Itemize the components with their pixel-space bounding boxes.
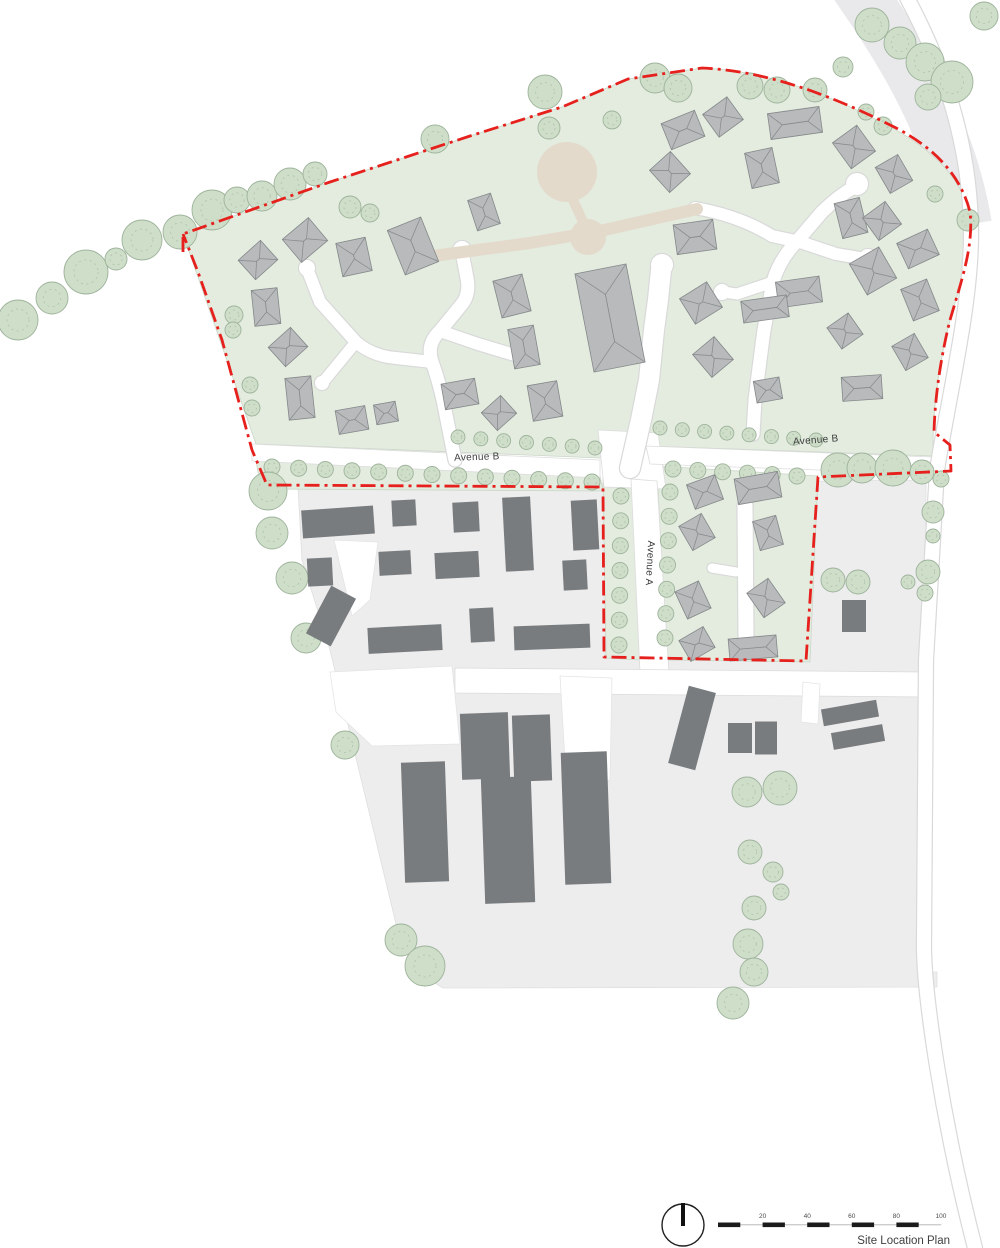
- tree-icon: [933, 471, 949, 487]
- tree-icon: [875, 450, 911, 486]
- tree-icon: [847, 453, 877, 483]
- existing-building: [512, 714, 552, 781]
- tree-icon: [371, 464, 387, 480]
- north-arrow: [662, 1203, 704, 1246]
- tree-icon: [901, 575, 915, 589]
- tree-icon: [612, 563, 628, 579]
- proposed-house: [373, 401, 398, 425]
- tree-icon: [720, 426, 734, 440]
- tree-icon: [846, 570, 870, 594]
- tree-icon: [317, 462, 333, 478]
- tree-icon: [538, 117, 560, 139]
- existing-building: [728, 723, 752, 753]
- proposed-house: [728, 635, 778, 661]
- tree-icon: [764, 77, 790, 103]
- tree-icon: [247, 181, 277, 211]
- tree-icon: [242, 377, 258, 393]
- tree-icon: [244, 400, 260, 416]
- tree-icon: [675, 423, 689, 437]
- tree-icon: [612, 587, 628, 603]
- ground-area: [801, 682, 820, 724]
- tree-icon: [105, 248, 127, 270]
- tree-icon: [926, 529, 940, 543]
- tree-icon: [451, 468, 467, 484]
- tree-icon: [664, 74, 692, 102]
- tree-icon: [915, 84, 941, 110]
- tree-icon: [821, 568, 845, 592]
- scale-bar: 20 40 60 80 100: [718, 1213, 947, 1227]
- tree-icon: [742, 428, 756, 442]
- tree-icon: [698, 424, 712, 438]
- proposed-house: [527, 381, 563, 422]
- tree-icon: [789, 468, 805, 484]
- tree-icon: [528, 75, 562, 109]
- existing-building: [434, 551, 479, 579]
- proposed-house: [673, 219, 717, 254]
- existing-building: [301, 506, 375, 539]
- proposed-house: [335, 406, 369, 435]
- existing-building: [460, 712, 510, 780]
- tree-icon: [331, 731, 359, 759]
- tree-icon: [542, 437, 556, 451]
- scale-bar-segment: [852, 1223, 874, 1228]
- tree-icon: [742, 896, 766, 920]
- north-arrow-needle-icon: [681, 1203, 685, 1226]
- tree-icon: [715, 464, 731, 480]
- tree-icon: [927, 186, 943, 202]
- tree-icon: [303, 162, 327, 186]
- scale-bar-segment: [807, 1223, 829, 1228]
- scale-tick-100: 100: [936, 1213, 947, 1220]
- tree-icon: [690, 462, 706, 478]
- scale-bar-segment: [896, 1223, 918, 1228]
- tree-icon: [520, 436, 534, 450]
- tree-icon: [361, 204, 379, 222]
- tree-icon: [64, 250, 108, 294]
- tree-icon: [474, 432, 488, 446]
- existing-building: [378, 550, 411, 576]
- existing-building: [755, 722, 777, 755]
- existing-building: [307, 557, 333, 586]
- tree-icon: [773, 884, 789, 900]
- tree-icon: [256, 517, 288, 549]
- tree-icon: [611, 612, 627, 628]
- tree-icon: [662, 484, 678, 500]
- tree-icon: [717, 987, 749, 1019]
- site-plan-drawing: Avenue B Avenue B Avenue A 20 40 60 80 1…: [0, 0, 1000, 1248]
- scale-bar-segment: [718, 1223, 740, 1228]
- tree-icon: [803, 78, 827, 102]
- tree-icon: [917, 585, 933, 601]
- tree-icon: [657, 630, 673, 646]
- tree-icon: [763, 862, 783, 882]
- tree-icon: [163, 215, 197, 249]
- tree-icon: [291, 460, 307, 476]
- existing-building: [367, 624, 442, 654]
- scale-bar-segment: [763, 1223, 785, 1228]
- tree-icon: [665, 461, 681, 477]
- tree-icon: [122, 220, 162, 260]
- existing-building: [842, 600, 866, 632]
- tree-icon: [738, 840, 762, 864]
- tree-icon: [497, 434, 511, 448]
- tree-icon: [504, 470, 520, 486]
- tree-icon: [451, 430, 465, 444]
- tree-icon: [855, 8, 889, 42]
- tree-icon: [659, 581, 675, 597]
- plan-title: Site Location Plan: [857, 1235, 950, 1247]
- tree-icon: [613, 513, 629, 529]
- existing-building: [502, 496, 534, 571]
- tree-icon: [611, 637, 627, 653]
- footpath-circle: [570, 219, 606, 255]
- tree-icon: [653, 421, 667, 435]
- road-turning-head: [651, 254, 673, 276]
- proposed-house: [285, 376, 315, 420]
- tree-icon: [565, 439, 579, 453]
- tree-icon: [531, 472, 547, 488]
- proposed-house: [336, 237, 372, 276]
- tree-icon: [763, 771, 797, 805]
- scale-tick-40: 40: [804, 1213, 812, 1220]
- existing-building: [561, 751, 612, 885]
- tree-icon: [276, 562, 308, 594]
- road-turning-head: [846, 173, 868, 195]
- tree-icon: [0, 300, 38, 340]
- site-location-plan-page: Avenue B Avenue B Avenue A 20 40 60 80 1…: [0, 0, 1000, 1248]
- existing-building: [401, 761, 449, 882]
- tree-icon: [658, 606, 674, 622]
- footpath-circle: [537, 142, 597, 202]
- road: [712, 568, 736, 572]
- tree-icon: [224, 187, 250, 213]
- tree-icon: [957, 209, 979, 231]
- tree-icon: [922, 501, 944, 523]
- proposed-house: [251, 288, 281, 327]
- tree-icon: [661, 508, 677, 524]
- tree-icon: [344, 463, 360, 479]
- tree-icon: [970, 2, 998, 30]
- proposed-house: [841, 375, 883, 402]
- tree-icon: [249, 472, 287, 510]
- tree-icon: [833, 57, 853, 77]
- tree-icon: [603, 111, 621, 129]
- existing-building: [481, 776, 535, 904]
- tree-icon: [612, 538, 628, 554]
- tree-icon: [339, 196, 361, 218]
- tree-icon: [477, 469, 493, 485]
- tree-icon: [588, 441, 602, 455]
- tree-icon: [225, 322, 241, 338]
- existing-building: [391, 499, 416, 526]
- tree-icon: [733, 929, 763, 959]
- tree-icon: [424, 467, 440, 483]
- tree-icon: [405, 946, 445, 986]
- tree-icon: [740, 958, 768, 986]
- tree-icon: [660, 533, 676, 549]
- proposed-house: [753, 377, 782, 403]
- existing-building: [514, 624, 591, 651]
- tree-icon: [274, 168, 306, 200]
- road: [745, 506, 746, 638]
- existing-building: [452, 501, 480, 532]
- tree-icon: [36, 282, 68, 314]
- tree-icon: [397, 465, 413, 481]
- tree-icon: [660, 557, 676, 573]
- tree-icon: [732, 777, 762, 807]
- tree-icon: [225, 306, 243, 324]
- existing-building: [469, 607, 495, 642]
- scale-tick-20: 20: [759, 1213, 767, 1220]
- existing-building: [562, 559, 588, 590]
- scale-tick-60: 60: [848, 1213, 856, 1220]
- tree-icon: [916, 560, 940, 584]
- tree-icon: [613, 488, 629, 504]
- avenue-b-left-label: Avenue B: [454, 451, 500, 464]
- scale-tick-80: 80: [893, 1213, 901, 1220]
- avenue-a-label: Avenue A: [643, 540, 656, 586]
- road-turning-head: [315, 376, 329, 390]
- proposed-house: [441, 378, 479, 410]
- tree-icon: [764, 430, 778, 444]
- existing-building: [571, 499, 600, 550]
